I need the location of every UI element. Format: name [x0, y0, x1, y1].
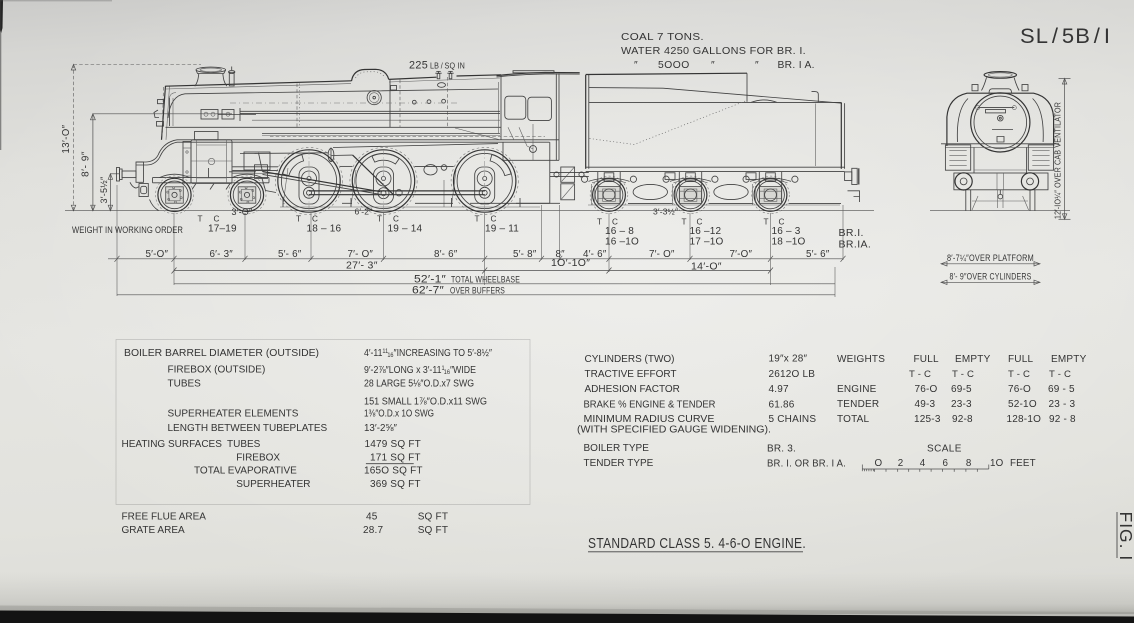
svg-text:CYLINDERS (TWO): CYLINDERS (TWO)	[585, 354, 675, 365]
svg-text:OVER BUFFERS: OVER BUFFERS	[450, 285, 505, 295]
svg-text:23 - 3: 23 - 3	[1049, 399, 1076, 410]
svg-text:T: T	[597, 218, 602, 227]
svg-text:SL / 5B / I: SL / 5B / I	[1020, 25, 1111, 48]
svg-text:T: T	[764, 218, 769, 227]
svg-text:TOTAL WHEELBASE: TOTAL WHEELBASE	[451, 274, 520, 284]
svg-text:SCALE: SCALE	[927, 444, 962, 455]
svg-text:EMPTY: EMPTY	[955, 354, 991, 365]
svg-text:23-3: 23-3	[951, 399, 972, 410]
svg-text:19 – 11: 19 – 11	[485, 224, 519, 235]
svg-text:″: ″	[755, 60, 759, 71]
svg-text:8′- 9″OVER CYLINDERS: 8′- 9″OVER CYLINDERS	[950, 272, 1032, 282]
svg-text:7′-O″: 7′-O″	[730, 249, 753, 260]
svg-text:LB / SQ IN: LB / SQ IN	[430, 61, 465, 70]
svg-text:T: T	[475, 215, 480, 224]
svg-text:STANDARD CLASS 5. 4-6-O ENGI: STANDARD CLASS 5. 4-6-O ENGINE.	[588, 536, 806, 552]
svg-text:C: C	[612, 218, 618, 227]
svg-text:WEIGHT IN WORKING ORDER: WEIGHT IN WORKING ORDER	[72, 225, 183, 235]
svg-text:8′- 9″: 8′- 9″	[80, 151, 92, 177]
svg-text:″: ″	[711, 60, 715, 71]
svg-text:76-O: 76-O	[1008, 384, 1031, 395]
svg-text:9′-2⅞″LONG x 3′-11116″WIDE: 9′-2⅞″LONG x 3′-11116″WIDE	[364, 365, 476, 376]
svg-text:TUBES: TUBES	[227, 439, 261, 450]
svg-text:T: T	[198, 215, 203, 224]
svg-text:92-8: 92-8	[952, 414, 973, 425]
svg-text:FREE FLUE AREA: FREE FLUE AREA	[122, 512, 207, 523]
svg-text:14′-O″: 14′-O″	[691, 260, 722, 272]
svg-text:5′- 6″: 5′- 6″	[278, 249, 302, 260]
svg-text:COAL 7 TONS.: COAL 7 TONS.	[621, 32, 704, 43]
svg-text:1479 SQ FT: 1479 SQ FT	[365, 439, 421, 450]
svg-text:T: T	[296, 215, 301, 224]
svg-text:FULL: FULL	[914, 354, 939, 365]
svg-text:19 – 14: 19 – 14	[388, 224, 423, 235]
svg-text:3′-3½″: 3′-3½″	[653, 207, 678, 217]
svg-text:ENGINE: ENGINE	[837, 384, 877, 395]
svg-text:8′- 6″: 8′- 6″	[434, 249, 458, 260]
svg-text:225: 225	[409, 60, 428, 72]
svg-text:5′-O″: 5′-O″	[146, 249, 169, 260]
svg-text:BR.I.: BR.I.	[839, 227, 864, 239]
svg-text:FIREBOX: FIREBOX	[236, 453, 280, 464]
svg-text:BOILER BARREL DIAMETER (OUT: BOILER BARREL DIAMETER (OUTSIDE)	[124, 348, 319, 359]
svg-text:17 –1O: 17 –1O	[690, 237, 724, 248]
svg-text:MINIMUM RADIUS CURVE: MINIMUM RADIUS CURVE	[584, 414, 715, 425]
svg-text:128-1O: 128-1O	[1007, 414, 1042, 425]
svg-text:3′-O″: 3′-O″	[232, 207, 253, 217]
svg-text:28.7: 28.7	[363, 525, 384, 536]
svg-text:BOILER TYPE: BOILER TYPE	[584, 443, 650, 454]
svg-text:C: C	[214, 215, 220, 224]
svg-text:″: ″	[634, 60, 638, 71]
svg-text:76-O: 76-O	[915, 384, 938, 395]
svg-text:WEIGHTS: WEIGHTS	[837, 354, 885, 365]
svg-text:TUBES: TUBES	[168, 378, 202, 389]
svg-text:TRACTIVE EFFORT: TRACTIVE EFFORT	[585, 369, 677, 380]
svg-text:13′-O″: 13′-O″	[60, 125, 72, 154]
svg-text:T - C: T - C	[909, 369, 931, 380]
svg-text:6: 6	[943, 458, 949, 469]
svg-text:4′-111116″INCREASING TO 5′-8½″: 4′-111116″INCREASING TO 5′-8½″	[364, 348, 493, 359]
svg-text:18 – 16: 18 – 16	[307, 224, 342, 235]
svg-text:6′-2″: 6′-2″	[355, 207, 373, 217]
svg-text:3′-5½″: 3′-5½″	[99, 176, 110, 203]
svg-text:SQ FT: SQ FT	[418, 525, 448, 536]
svg-text:EMPTY: EMPTY	[1051, 354, 1087, 365]
svg-text:7′- O″: 7′- O″	[348, 249, 374, 260]
svg-text:4: 4	[920, 458, 926, 469]
svg-text:16 – 3: 16 – 3	[772, 226, 801, 237]
svg-text:T: T	[377, 215, 382, 224]
svg-text:5OOO: 5OOO	[658, 60, 690, 71]
svg-text:61.86: 61.86	[769, 400, 795, 411]
svg-text:C: C	[697, 218, 703, 227]
svg-text:2612O LB: 2612O LB	[769, 369, 816, 380]
svg-text:TENDER TYPE: TENDER TYPE	[584, 458, 654, 469]
svg-text:125-3: 125-3	[914, 414, 941, 425]
svg-text:BR. I A.: BR. I A.	[778, 60, 815, 71]
svg-text:7′- O″: 7′- O″	[649, 249, 675, 260]
svg-text:8′-7¼″OVER PLATFORM: 8′-7¼″OVER PLATFORM	[947, 253, 1034, 263]
svg-text:4.97: 4.97	[769, 384, 790, 395]
svg-text:T - C: T - C	[1008, 369, 1030, 380]
svg-text:5′- 8″: 5′- 8″	[513, 249, 537, 260]
svg-text:151 SMALL 1⅞″O.D.x11 SWG: 151 SMALL 1⅞″O.D.x11 SWG	[364, 397, 487, 408]
svg-text:27′- 3″: 27′- 3″	[346, 260, 378, 272]
svg-text:13′-2⅝″: 13′-2⅝″	[364, 423, 398, 434]
svg-text:FEET: FEET	[1010, 458, 1036, 469]
svg-text:FIG. I: FIG. I	[1116, 512, 1134, 562]
svg-text:92 - 8: 92 - 8	[1049, 414, 1076, 425]
svg-text:T - C: T - C	[952, 369, 974, 380]
svg-text:28 LARGE 5⅛″O.D.x7 SWG: 28 LARGE 5⅛″O.D.x7 SWG	[364, 378, 474, 389]
svg-text:FIREBOX (OUTSIDE): FIREBOX (OUTSIDE)	[168, 364, 266, 375]
svg-text:FULL: FULL	[1008, 354, 1033, 365]
svg-text:2: 2	[898, 458, 904, 469]
svg-text:TOTAL: TOTAL	[837, 414, 870, 425]
svg-text:62′-7″: 62′-7″	[412, 284, 444, 296]
svg-text:69 - 5: 69 - 5	[1048, 384, 1075, 395]
svg-text:49-3: 49-3	[915, 399, 936, 410]
svg-text:1O′-1O″: 1O′-1O″	[551, 257, 590, 269]
svg-text:SUPERHEATER: SUPERHEATER	[236, 479, 310, 490]
svg-text:ADHESION FACTOR: ADHESION FACTOR	[585, 384, 680, 395]
svg-text:6′- 3″: 6′- 3″	[210, 249, 234, 260]
svg-text:C: C	[779, 218, 785, 227]
svg-text:T - C: T - C	[1049, 369, 1071, 380]
svg-text:T: T	[682, 218, 687, 227]
svg-text:BRAKE % ENGINE & TENDER: BRAKE % ENGINE & TENDER	[584, 400, 716, 411]
svg-text:171 SQ FT: 171 SQ FT	[370, 453, 421, 464]
svg-text:45: 45	[366, 512, 378, 523]
svg-text:52-1O: 52-1O	[1008, 399, 1037, 410]
svg-text:16 – 8: 16 – 8	[605, 226, 634, 237]
svg-text:BR. 3.: BR. 3.	[767, 444, 796, 455]
svg-text:LENGTH BETWEEN TUBEPLATES: LENGTH BETWEEN TUBEPLATES	[168, 423, 328, 434]
svg-text:1O: 1O	[990, 458, 1004, 469]
svg-text:C: C	[393, 215, 399, 224]
svg-text:BR. I. OR BR. I A.: BR. I. OR BR. I A.	[767, 459, 846, 470]
svg-text:GRATE AREA: GRATE AREA	[122, 525, 185, 536]
svg-text:12′-IO¼″ OVER CAB VENTILATOR: 12′-IO¼″ OVER CAB VENTILATOR	[1054, 102, 1063, 219]
svg-text:16 –1O: 16 –1O	[605, 237, 639, 248]
svg-text:165O SQ FT: 165O SQ FT	[364, 466, 423, 477]
svg-text:TOTAL EVAPORATIVE: TOTAL EVAPORATIVE	[194, 466, 297, 477]
svg-text:(WITH SPECIFIED GAUGE WIDENI: (WITH SPECIFIED GAUGE WIDENING).	[577, 425, 771, 436]
svg-text:SUPERHEATER ELEMENTS: SUPERHEATER ELEMENTS	[168, 409, 299, 420]
svg-text:19″x 28″: 19″x 28″	[769, 354, 808, 365]
svg-text:5′- 6″: 5′- 6″	[806, 249, 830, 260]
svg-text:18 –1O: 18 –1O	[772, 237, 806, 248]
svg-text:SQ FT: SQ FT	[418, 512, 448, 523]
svg-text:O: O	[875, 458, 883, 469]
svg-text:BR.IA.: BR.IA.	[839, 239, 872, 251]
svg-text:C: C	[312, 215, 318, 224]
svg-text:C: C	[491, 215, 497, 224]
svg-text:16 –12: 16 –12	[690, 226, 722, 237]
svg-text:8: 8	[966, 458, 972, 469]
svg-text:1⅜″O.D.x 1O SWG: 1⅜″O.D.x 1O SWG	[364, 409, 434, 420]
svg-text:17–19: 17–19	[208, 224, 237, 235]
svg-text:HEATING SURFACES: HEATING SURFACES	[122, 439, 223, 450]
svg-text:69-5: 69-5	[951, 384, 972, 395]
svg-text:TENDER: TENDER	[837, 399, 879, 410]
svg-text:WATER 4250 GALLONS FOR BR. I.: WATER 4250 GALLONS FOR BR. I.	[621, 46, 806, 57]
svg-text:5 CHAINS: 5 CHAINS	[769, 414, 817, 425]
svg-text:369 SQ FT: 369 SQ FT	[370, 479, 421, 490]
